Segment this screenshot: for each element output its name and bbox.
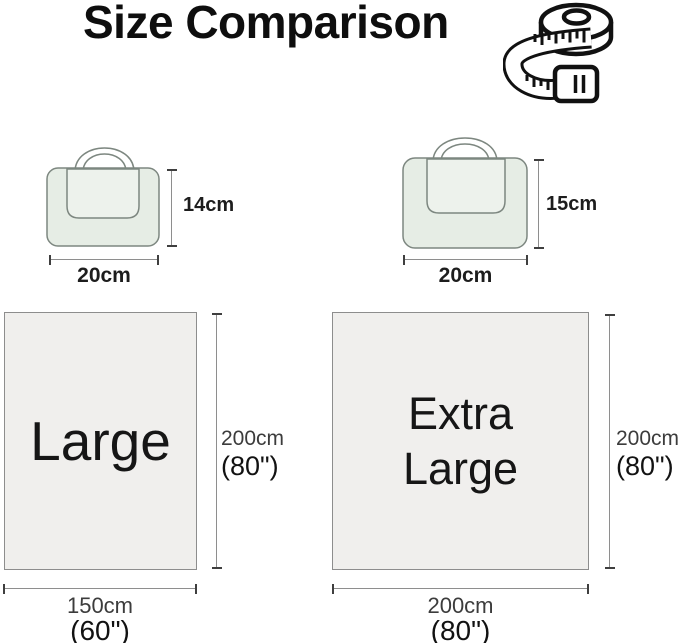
large-width-inch: (60") (3, 617, 197, 643)
large-width-labels: 150cm (60") (3, 594, 197, 643)
extra-large-width-cm: 200cm (332, 594, 589, 617)
extra-large-width-dim-line (332, 588, 589, 589)
big-bag-flap (427, 159, 505, 213)
large-height-inch: (80") (221, 451, 284, 481)
large-panel-label: Large (30, 412, 171, 470)
large-height-dim-line (216, 313, 217, 569)
large-height-cm: 200cm (221, 427, 284, 451)
extra-large-width-inch: (80") (332, 617, 589, 643)
big-bag-width-dim-line (403, 259, 528, 260)
size-comparison-diagram: Size Comparison (0, 0, 679, 643)
big-bag-illustration (395, 116, 555, 261)
extra-large-panel: Extra Large (332, 312, 589, 570)
small-bag-width-dim-line (49, 259, 159, 260)
small-bag-height-dim-line (171, 169, 172, 247)
page-title: Size Comparison (83, 0, 449, 48)
small-bag-height-label: 14cm (183, 194, 234, 216)
extra-large-width-labels: 200cm (80") (332, 594, 589, 643)
measuring-tape-icon (503, 1, 631, 113)
small-bag-flap (67, 169, 139, 218)
large-width-cm: 150cm (3, 594, 197, 617)
large-panel: Large (4, 312, 197, 570)
big-bag-width-label: 20cm (403, 265, 528, 287)
large-width-dim-line (3, 588, 197, 589)
small-bag-illustration (30, 128, 185, 263)
small-bag-width-label: 20cm (49, 265, 159, 287)
big-bag-height-label: 15cm (546, 193, 597, 215)
extra-large-height-labels: 200cm (80") (616, 427, 679, 481)
extra-large-height-dim-line (609, 314, 610, 569)
extra-large-height-cm: 200cm (616, 427, 679, 451)
extra-large-panel-label: Extra Large (361, 386, 561, 496)
large-height-labels: 200cm (80") (221, 427, 284, 481)
extra-large-height-inch: (80") (616, 451, 679, 481)
big-bag-height-dim-line (538, 159, 539, 249)
